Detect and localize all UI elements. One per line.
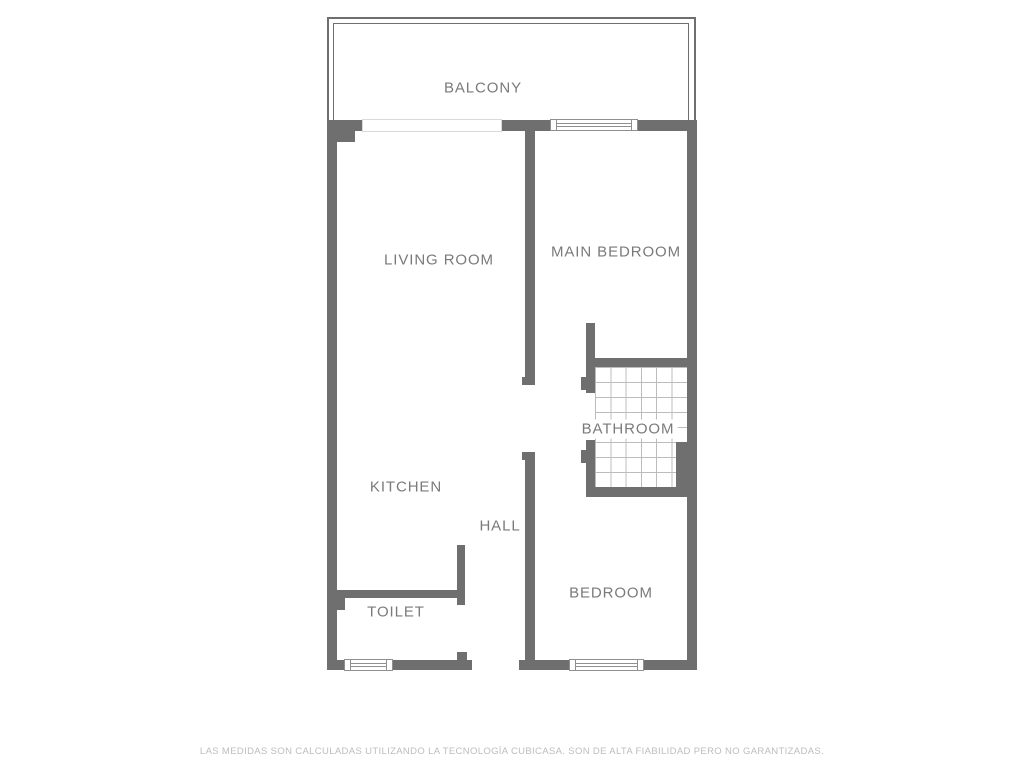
toilet-right-wall [457,545,465,605]
left-wall [327,120,337,670]
bathroom-door-jamb-lower [581,450,586,463]
balcony-door-opening [362,119,502,132]
room-label-main-bedroom: MAIN BEDROOM [551,244,681,261]
measurement-disclaimer: LAS MEDIDAS SON CALCULADAS UTILIZANDO LA… [200,746,824,757]
room-label-balcony: BALCONY [444,80,522,97]
main-bedroom-bottom-wall [586,358,687,367]
left-wall-block [327,597,345,610]
room-label-hall: HALL [479,518,520,535]
toilet-window [344,659,393,671]
toilet-top-wall [337,590,457,598]
right-wall [687,120,697,670]
bottom-wall-b [392,660,472,670]
bathroom-door-jamb-upper [581,377,586,390]
top-left-stub [337,131,355,142]
bottom-wall-c [519,660,570,670]
divider-end-cap [522,377,535,385]
room-label-living-room: LIVING ROOM [384,252,494,269]
room-label-toilet: TOILET [367,604,425,621]
floorplan-canvas: LAS MEDIDAS SON CALCULADAS UTILIZANDO LA… [0,0,1024,768]
bottom-wall-a [327,660,345,670]
bathroom-right-block [676,442,687,497]
main-bedroom-window [550,119,638,131]
hall-divider-end-cap [522,452,535,460]
balcony-railing-inner [333,23,689,125]
room-label-bedroom: BEDROOM [569,585,653,602]
livingroom-bedroom-divider [525,131,535,385]
bottom-wall-d [643,660,697,670]
bedroom-window [569,659,644,671]
room-label-bathroom: BATHROOM [579,420,678,439]
toilet-door-stub [457,652,467,660]
room-label-kitchen: KITCHEN [370,479,442,496]
hall-bedroom-divider [525,452,535,660]
bathroom-left-wall-upper [586,323,595,393]
top-wall-mid [502,120,551,131]
